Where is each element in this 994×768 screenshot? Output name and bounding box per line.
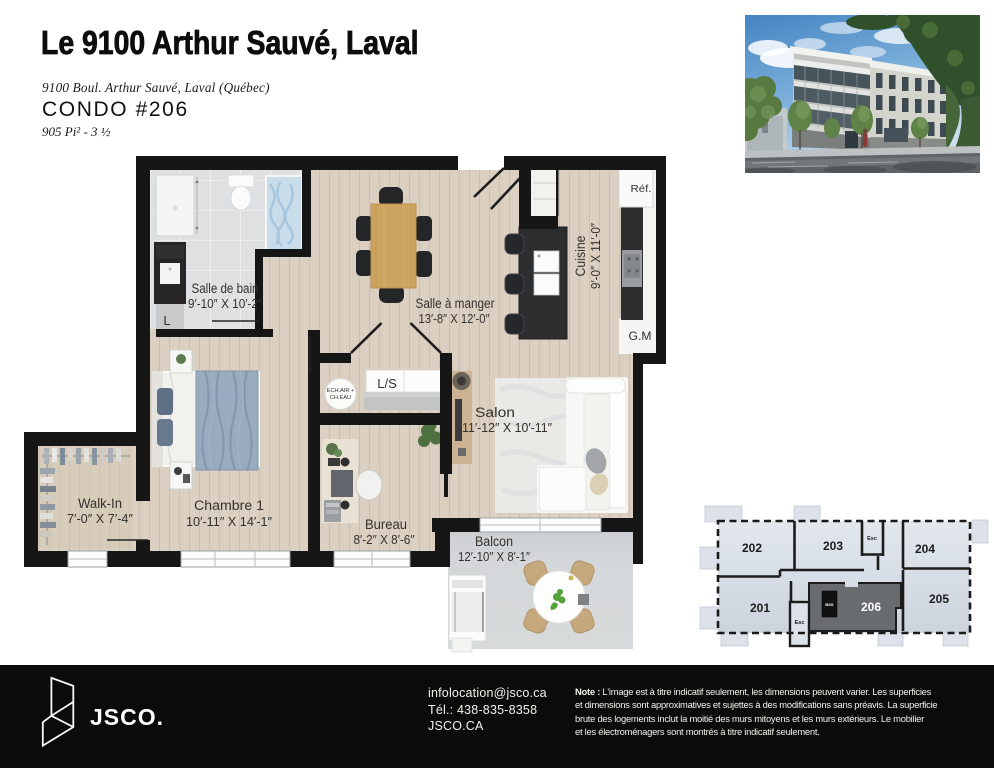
svg-text:202: 202 xyxy=(742,541,762,555)
svg-text:Salle à manger: Salle à manger xyxy=(416,296,495,311)
svg-text:G.M: G.M xyxy=(629,331,652,343)
svg-text:204: 204 xyxy=(915,542,935,556)
svg-text:9′-0″ X 11′-0″: 9′-0″ X 11′-0″ xyxy=(588,223,603,289)
svg-text:8′-2″ X 8′-6″: 8′-2″ X 8′-6″ xyxy=(354,532,415,547)
svg-text:203: 203 xyxy=(823,539,843,553)
svg-text:L: L xyxy=(163,313,170,328)
svg-text:Chambre 1: Chambre 1 xyxy=(194,498,264,513)
svg-text:201: 201 xyxy=(750,601,770,615)
svg-text:CH.EAU: CH.EAU xyxy=(330,395,351,401)
svg-text:BSS: BSS xyxy=(825,602,834,607)
svg-text:L/S: L/S xyxy=(377,376,397,391)
svg-text:9′-10″ X 10′-2″: 9′-10″ X 10′-2″ xyxy=(188,296,262,311)
svg-text:Esc: Esc xyxy=(795,620,805,626)
svg-text:Bureau: Bureau xyxy=(365,517,407,532)
svg-text:206: 206 xyxy=(861,600,881,614)
svg-text:11′-12″ X 10′-11″: 11′-12″ X 10′-11″ xyxy=(462,420,552,435)
svg-text:Esc: Esc xyxy=(867,536,877,542)
svg-text:Balcon: Balcon xyxy=(475,534,513,549)
svg-text:205: 205 xyxy=(929,592,949,606)
svg-text:ECH.AIR +: ECH.AIR + xyxy=(327,388,355,394)
svg-text:Salle de bain: Salle de bain xyxy=(192,281,259,296)
svg-text:Walk-In: Walk-In xyxy=(78,496,122,511)
svg-text:7′-0″ X 7′-4″: 7′-0″ X 7′-4″ xyxy=(67,511,133,526)
svg-text:10′-11″ X 14′-1″: 10′-11″ X 14′-1″ xyxy=(186,514,272,529)
svg-text:13′-8″ X 12′-0″: 13′-8″ X 12′-0″ xyxy=(419,311,490,326)
svg-text:12′-10″ X 8′-1″: 12′-10″ X 8′-1″ xyxy=(458,549,530,564)
svg-text:Cuisine: Cuisine xyxy=(573,236,588,277)
svg-text:Réf.: Réf. xyxy=(631,183,652,195)
svg-text:Salon: Salon xyxy=(475,405,515,420)
